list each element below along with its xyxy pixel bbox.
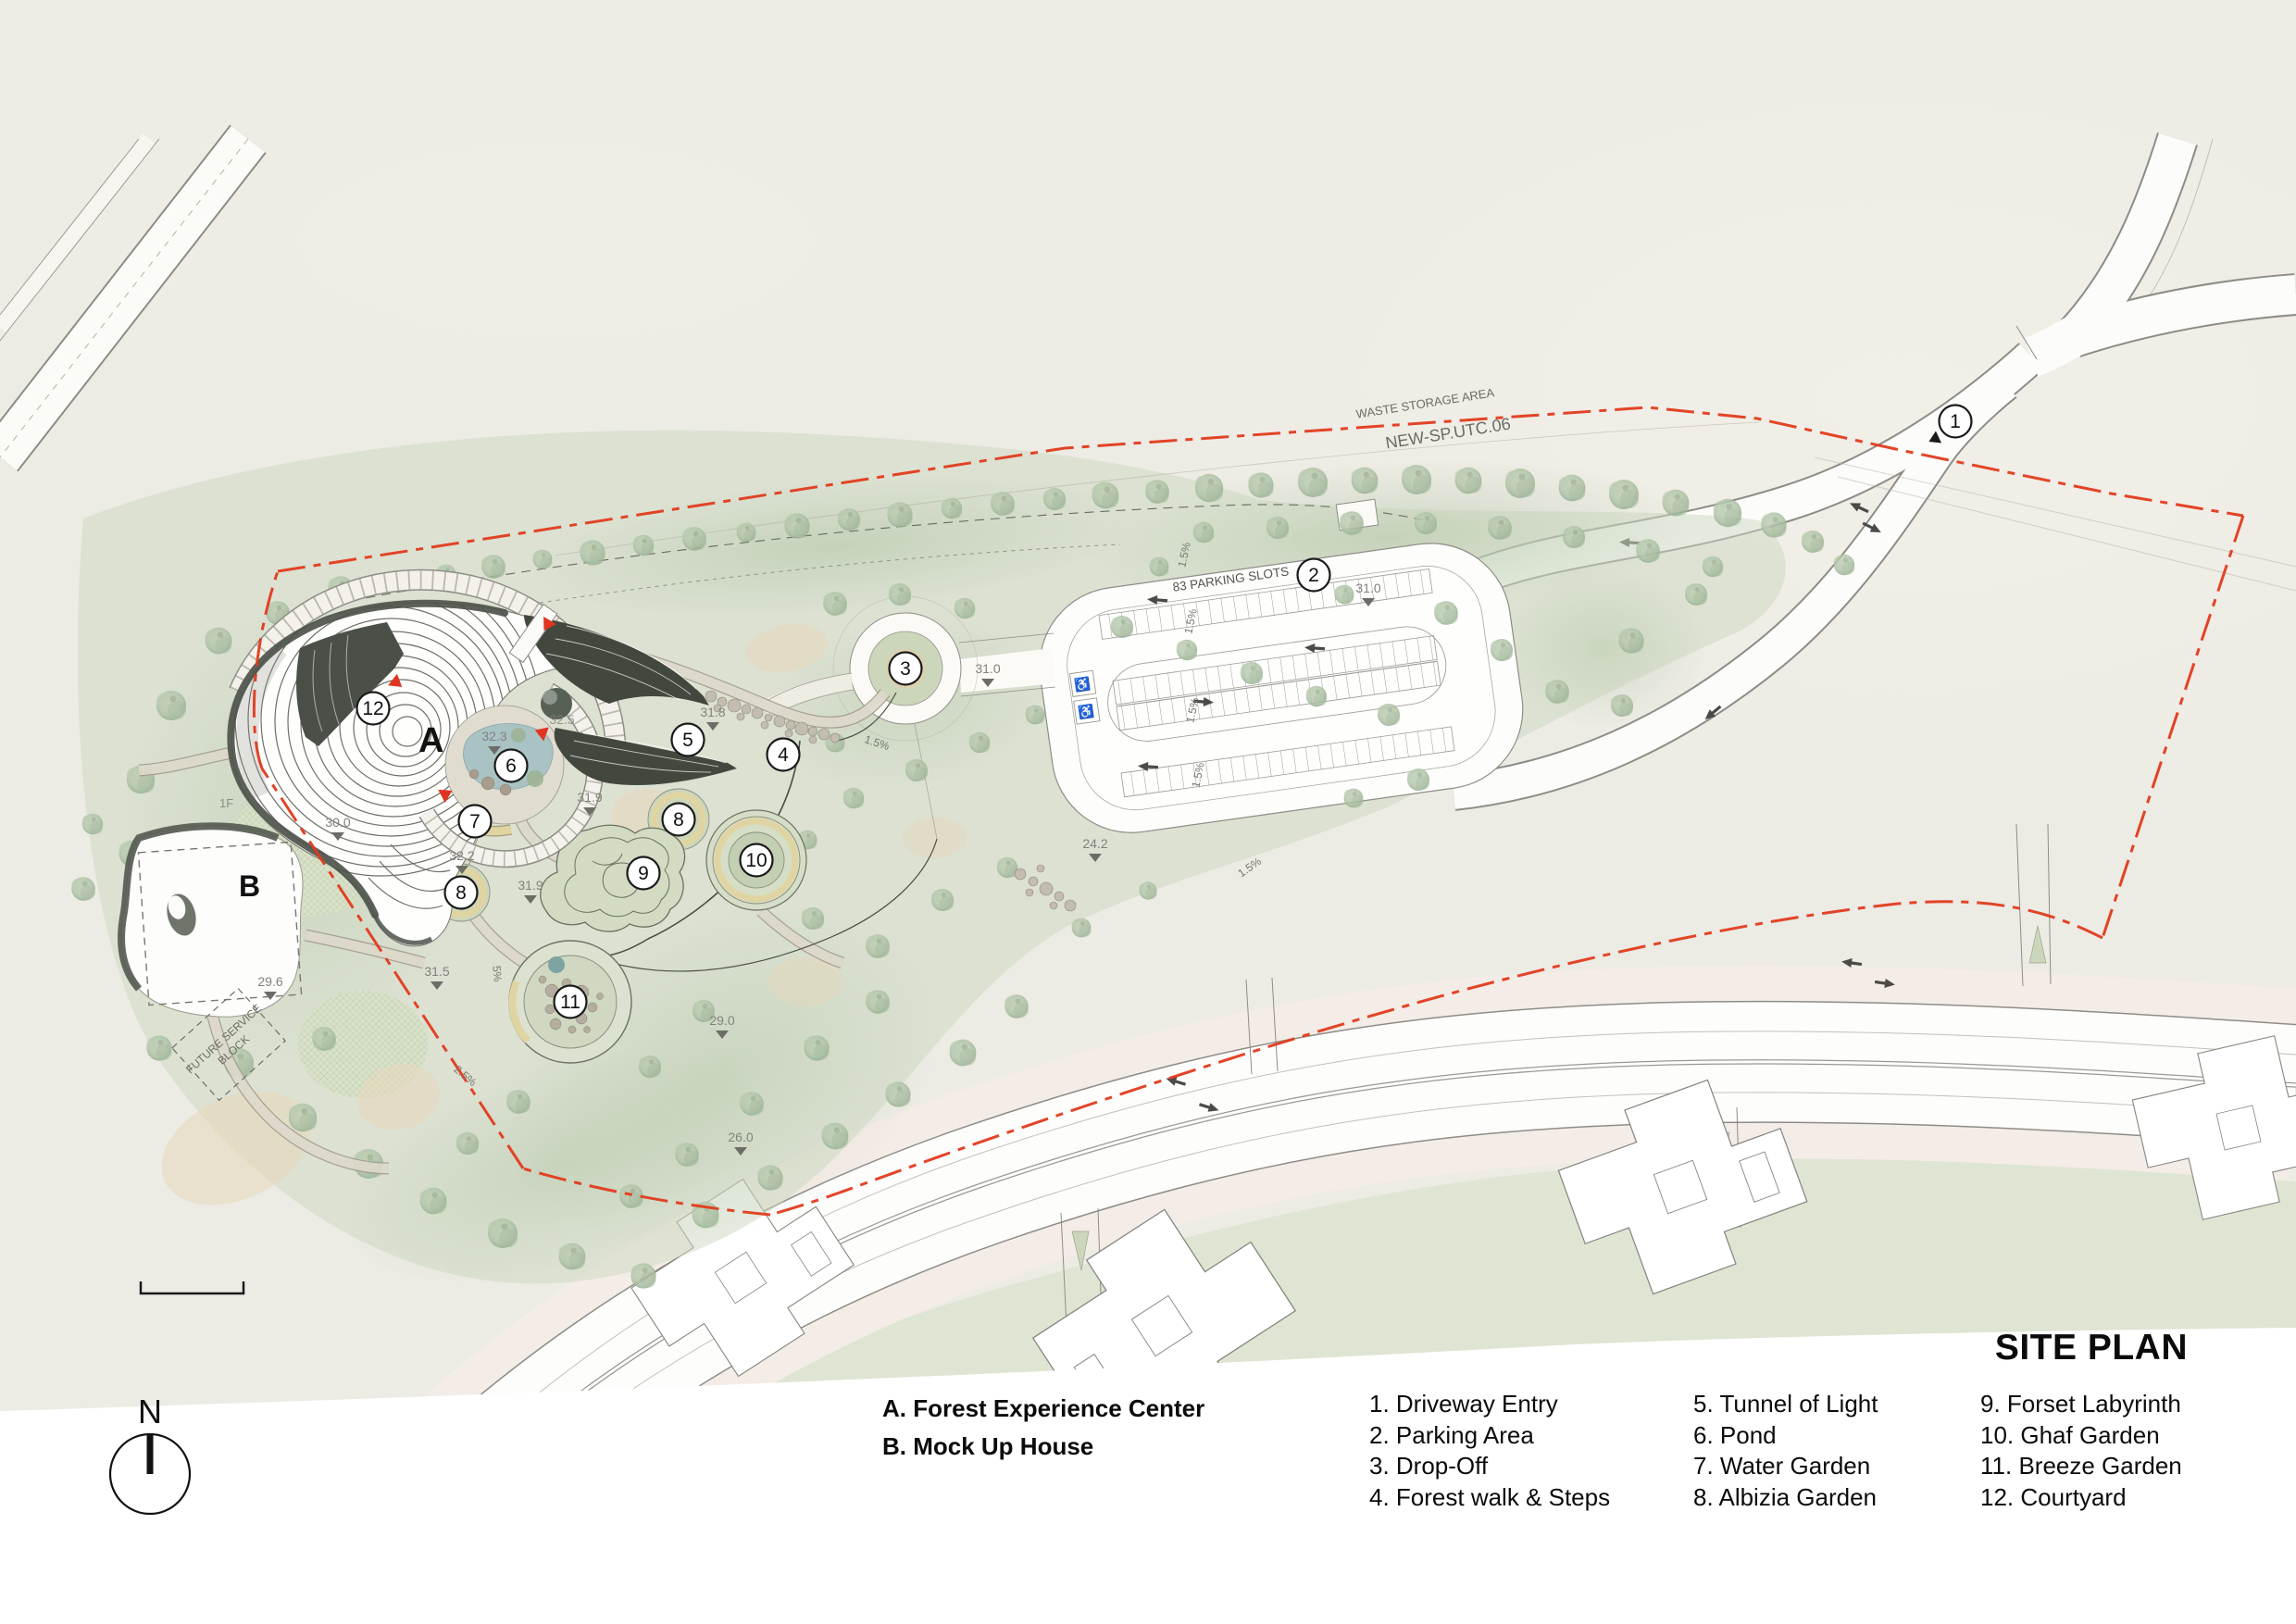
svg-text:29.6: 29.6 <box>257 974 282 989</box>
marker-6: 6 <box>495 750 528 782</box>
svg-text:7: 7 <box>469 811 480 832</box>
legend-item-4: 4. Forest walk & Steps <box>1369 1482 1610 1514</box>
svg-text:8: 8 <box>673 809 684 831</box>
legend-building-b: B. Mock Up House <box>882 1428 1204 1466</box>
marker-2: 2 <box>1298 559 1330 592</box>
svg-text:4: 4 <box>778 744 789 766</box>
svg-text:5%: 5% <box>490 965 504 982</box>
svg-text:24.2: 24.2 <box>1082 836 1107 851</box>
legend-item-6: 6. Pond <box>1693 1420 1878 1452</box>
legend-item-1: 1. Driveway Entry <box>1369 1389 1610 1420</box>
svg-text:12: 12 <box>362 698 383 719</box>
svg-text:31.0: 31.0 <box>1355 581 1380 595</box>
svg-text:6: 6 <box>505 756 517 777</box>
marker-8a: 8 <box>663 804 695 836</box>
legend-building-a: A. Forest Experience Center <box>882 1390 1204 1428</box>
svg-text:3: 3 <box>900 658 911 680</box>
legend-item-8: 8. Albizia Garden <box>1693 1482 1878 1514</box>
north-compass-icon: N <box>108 1384 201 1532</box>
marker-11: 11 <box>555 986 587 1018</box>
svg-text:9: 9 <box>638 863 649 884</box>
marker-3: 3 <box>890 653 922 685</box>
page-title: SITE PLAN <box>1995 1328 2188 1368</box>
legend-item-2: 2. Parking Area <box>1369 1420 1610 1452</box>
legend-item-5: 5. Tunnel of Light <box>1693 1389 1878 1420</box>
legend-column-3: 9. Forset Labyrinth 10. Ghaf Garden 11. … <box>1980 1389 2182 1513</box>
building-b-label: B <box>239 869 260 903</box>
marker-5: 5 <box>672 724 705 756</box>
legend-buildings: A. Forest Experience Center B. Mock Up H… <box>882 1390 1204 1466</box>
legend-item-11: 11. Breeze Garden <box>1980 1451 2182 1482</box>
marker-7: 7 <box>459 806 492 838</box>
svg-text:31.9: 31.9 <box>518 878 543 893</box>
svg-text:31.9: 31.9 <box>577 790 602 805</box>
svg-text:32.2: 32.2 <box>449 848 474 863</box>
north-label: N <box>138 1393 162 1430</box>
marker-1: 1 <box>1940 406 1972 438</box>
building-a-label: A <box>418 721 443 760</box>
svg-text:29.0: 29.0 <box>709 1013 734 1028</box>
marker-8b: 8 <box>445 877 478 909</box>
legend-item-9: 9. Forset Labyrinth <box>1980 1389 2182 1420</box>
legend-item-3: 3. Drop-Off <box>1369 1451 1610 1482</box>
marker-9: 9 <box>628 857 660 890</box>
svg-text:26.0: 26.0 <box>728 1130 753 1144</box>
svg-text:10: 10 <box>745 850 767 871</box>
svg-text:11: 11 <box>560 992 580 1013</box>
svg-text:32.5: 32.5 <box>549 712 574 727</box>
site-plan-drawing: ♿ ♿ <box>0 0 2296 1624</box>
north-compass: N <box>108 1384 201 1537</box>
svg-text:30.0: 30.0 <box>325 815 350 830</box>
legend-item-10: 10. Ghaf Garden <box>1980 1420 2182 1452</box>
legend-column-2: 5. Tunnel of Light 6. Pond 7. Water Gard… <box>1693 1389 1878 1513</box>
svg-text:5: 5 <box>682 730 693 751</box>
marker-4: 4 <box>767 739 800 771</box>
svg-text:2: 2 <box>1308 565 1319 586</box>
legend-item-12: 12. Courtyard <box>1980 1482 2182 1514</box>
svg-text:8: 8 <box>455 882 467 904</box>
marker-12: 12 <box>357 693 390 725</box>
legend-item-7: 7. Water Garden <box>1693 1451 1878 1482</box>
site-plan-sheet: ♿ ♿ <box>0 0 2296 1624</box>
svg-text:31.8: 31.8 <box>700 705 725 719</box>
svg-text:32.3: 32.3 <box>481 729 506 743</box>
floor-label: 1F <box>219 796 233 810</box>
svg-text:31.0: 31.0 <box>975 661 1000 676</box>
svg-text:31.5: 31.5 <box>424 964 449 979</box>
svg-text:1: 1 <box>1950 411 1961 432</box>
marker-10: 10 <box>741 844 773 877</box>
legend-column-1: 1. Driveway Entry 2. Parking Area 3. Dro… <box>1369 1389 1610 1513</box>
